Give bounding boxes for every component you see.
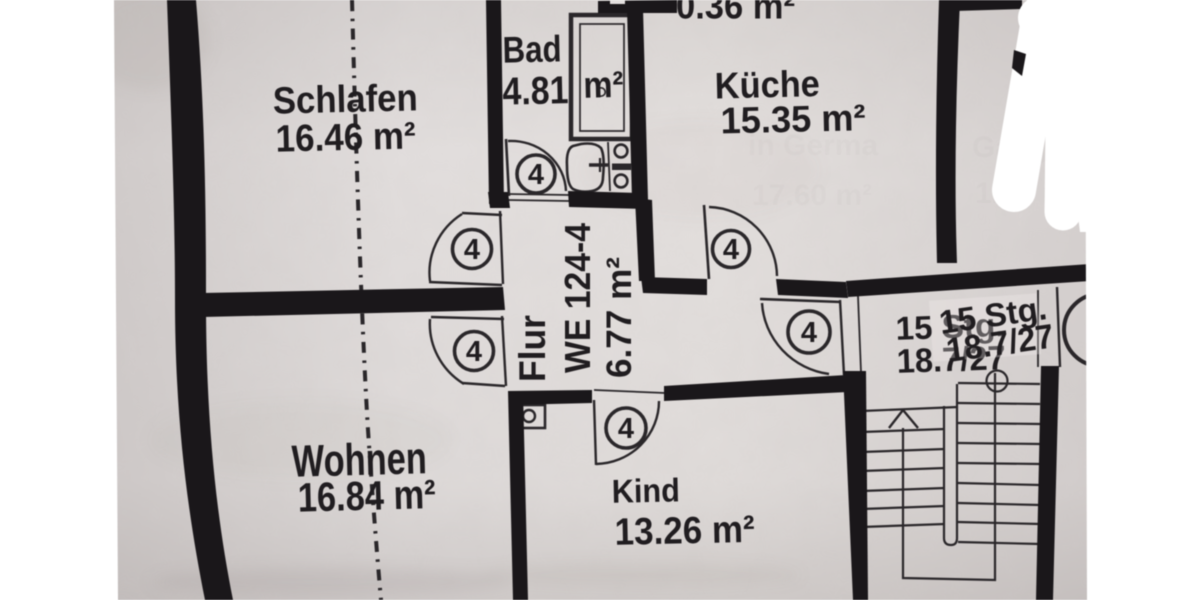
svg-text:in Germa: in Germa bbox=[748, 129, 878, 162]
svg-text:13.26 m²: 13.26 m² bbox=[614, 509, 755, 554]
svg-text:4: 4 bbox=[464, 234, 480, 266]
svg-text:16.46 m²: 16.46 m² bbox=[275, 115, 416, 160]
svg-text:WE 124-4: WE 124-4 bbox=[557, 223, 598, 373]
svg-text:17.60 m²: 17.60 m² bbox=[752, 179, 872, 212]
svg-text:4: 4 bbox=[801, 317, 817, 349]
svg-text:m²: m² bbox=[583, 64, 624, 106]
svg-text:0.36 m²: 0.36 m² bbox=[676, 0, 795, 27]
svg-text:4.81: 4.81 bbox=[502, 69, 569, 113]
svg-text:4: 4 bbox=[528, 159, 544, 191]
svg-text:4: 4 bbox=[466, 336, 482, 368]
svg-text:Bad: Bad bbox=[502, 28, 562, 70]
svg-text:6.77 m²: 6.77 m² bbox=[600, 257, 639, 378]
svg-text:4: 4 bbox=[723, 234, 739, 266]
svg-text:4: 4 bbox=[618, 413, 634, 445]
svg-text:Flur: Flur bbox=[512, 315, 553, 382]
svg-text:Kind: Kind bbox=[611, 471, 680, 509]
svg-text:16.84 m²: 16.84 m² bbox=[297, 471, 436, 521]
